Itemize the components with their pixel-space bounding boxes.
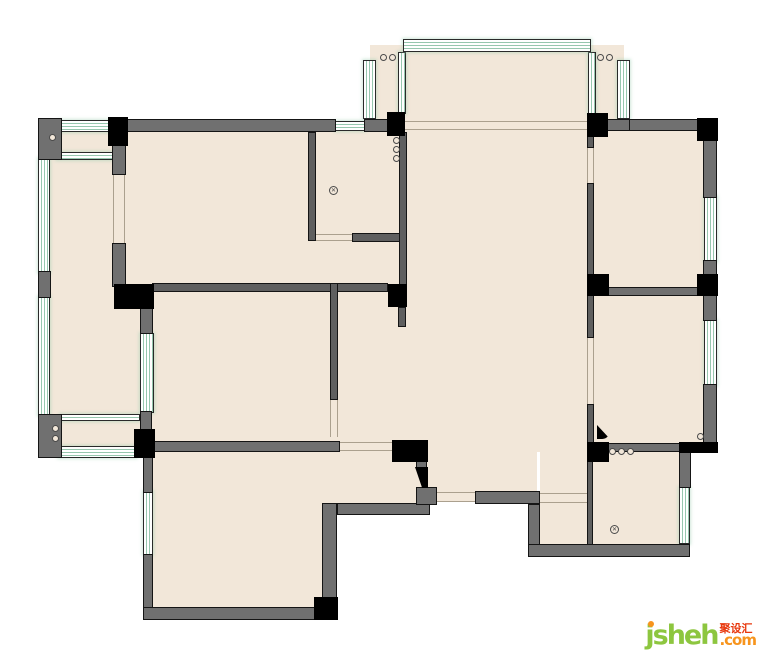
fixture-circle [52, 425, 59, 432]
wall [703, 138, 717, 198]
column [587, 442, 609, 462]
fixture-circle [389, 54, 396, 61]
wall [322, 503, 337, 600]
wall [140, 411, 152, 431]
window-h [56, 152, 115, 160]
column [108, 117, 128, 146]
fixture-circle [52, 435, 59, 442]
window-v [140, 333, 154, 413]
column [697, 274, 718, 296]
floor [370, 45, 624, 126]
wall-thin [399, 132, 407, 287]
window-h [58, 120, 110, 132]
jsheh-watermark-logo: jsheh 聚设汇 .com [645, 623, 756, 646]
wall [703, 294, 717, 321]
fixture-circle [49, 134, 56, 141]
wall [152, 441, 340, 452]
window-h [58, 446, 137, 458]
window-v [38, 296, 50, 416]
window-h [403, 39, 591, 52]
fixture-circle [609, 448, 616, 455]
window-v [617, 60, 630, 119]
logo-brand-text: jsheh [645, 625, 717, 646]
window-v [398, 52, 406, 114]
window-v [679, 487, 690, 544]
wall [703, 384, 717, 443]
threshold-v [587, 338, 594, 404]
column [387, 112, 405, 136]
column [587, 113, 608, 137]
column [679, 442, 718, 453]
floor-drain-icon [610, 525, 619, 534]
threshold-h [316, 234, 352, 241]
wall-thin [330, 283, 338, 400]
wall-thin [587, 295, 594, 338]
wall-thin [587, 183, 594, 277]
wall [143, 607, 337, 620]
wall [628, 119, 700, 131]
window-v [38, 158, 50, 273]
wall-thin [308, 132, 316, 241]
column [388, 284, 407, 307]
floor-plan-canvas: jsheh 聚设汇 .com [0, 0, 760, 651]
fixture-circle [380, 54, 387, 61]
wall-thin [152, 283, 388, 292]
floor-drain-icon [329, 186, 338, 195]
floor [148, 512, 330, 612]
fixture-circle [627, 448, 634, 455]
wall [606, 287, 698, 296]
logo-tail: 聚设汇 .com [719, 623, 756, 646]
window-v [363, 60, 376, 119]
logo-dotcom-text: .com [719, 634, 756, 646]
window-v [704, 196, 717, 262]
wall [607, 119, 630, 131]
wall [143, 455, 153, 493]
window-v [704, 320, 717, 386]
fixture-circle [618, 448, 625, 455]
fixture-circle [393, 137, 400, 144]
wall [124, 119, 336, 132]
column [697, 118, 718, 141]
threshold-h [437, 492, 475, 502]
wall [112, 143, 126, 175]
wall-thin [398, 307, 406, 327]
fixture-circle [393, 146, 400, 153]
wall [679, 452, 691, 488]
window-v [588, 52, 596, 114]
fixture-circle [393, 155, 400, 162]
wall [38, 271, 51, 298]
window-h [335, 121, 365, 131]
threshold-v [330, 400, 338, 437]
fixture-circle [697, 433, 704, 440]
wall [475, 491, 540, 504]
threshold-h [540, 493, 587, 503]
column [114, 284, 154, 309]
wall [140, 307, 153, 334]
wall [416, 487, 437, 505]
threshold-h [340, 442, 393, 451]
wall-thin [587, 461, 593, 545]
window-h [60, 414, 140, 421]
threshold-v [587, 148, 594, 183]
column [587, 274, 609, 296]
wall [528, 544, 690, 557]
window-v [143, 491, 153, 555]
column [392, 440, 428, 462]
threshold-v [113, 175, 125, 243]
wall-thin [587, 404, 594, 443]
threshold-h [404, 121, 588, 130]
fixture-circle [606, 54, 613, 61]
column [314, 597, 338, 620]
wall [112, 243, 126, 287]
column [134, 429, 155, 458]
fixture-circle [597, 54, 604, 61]
